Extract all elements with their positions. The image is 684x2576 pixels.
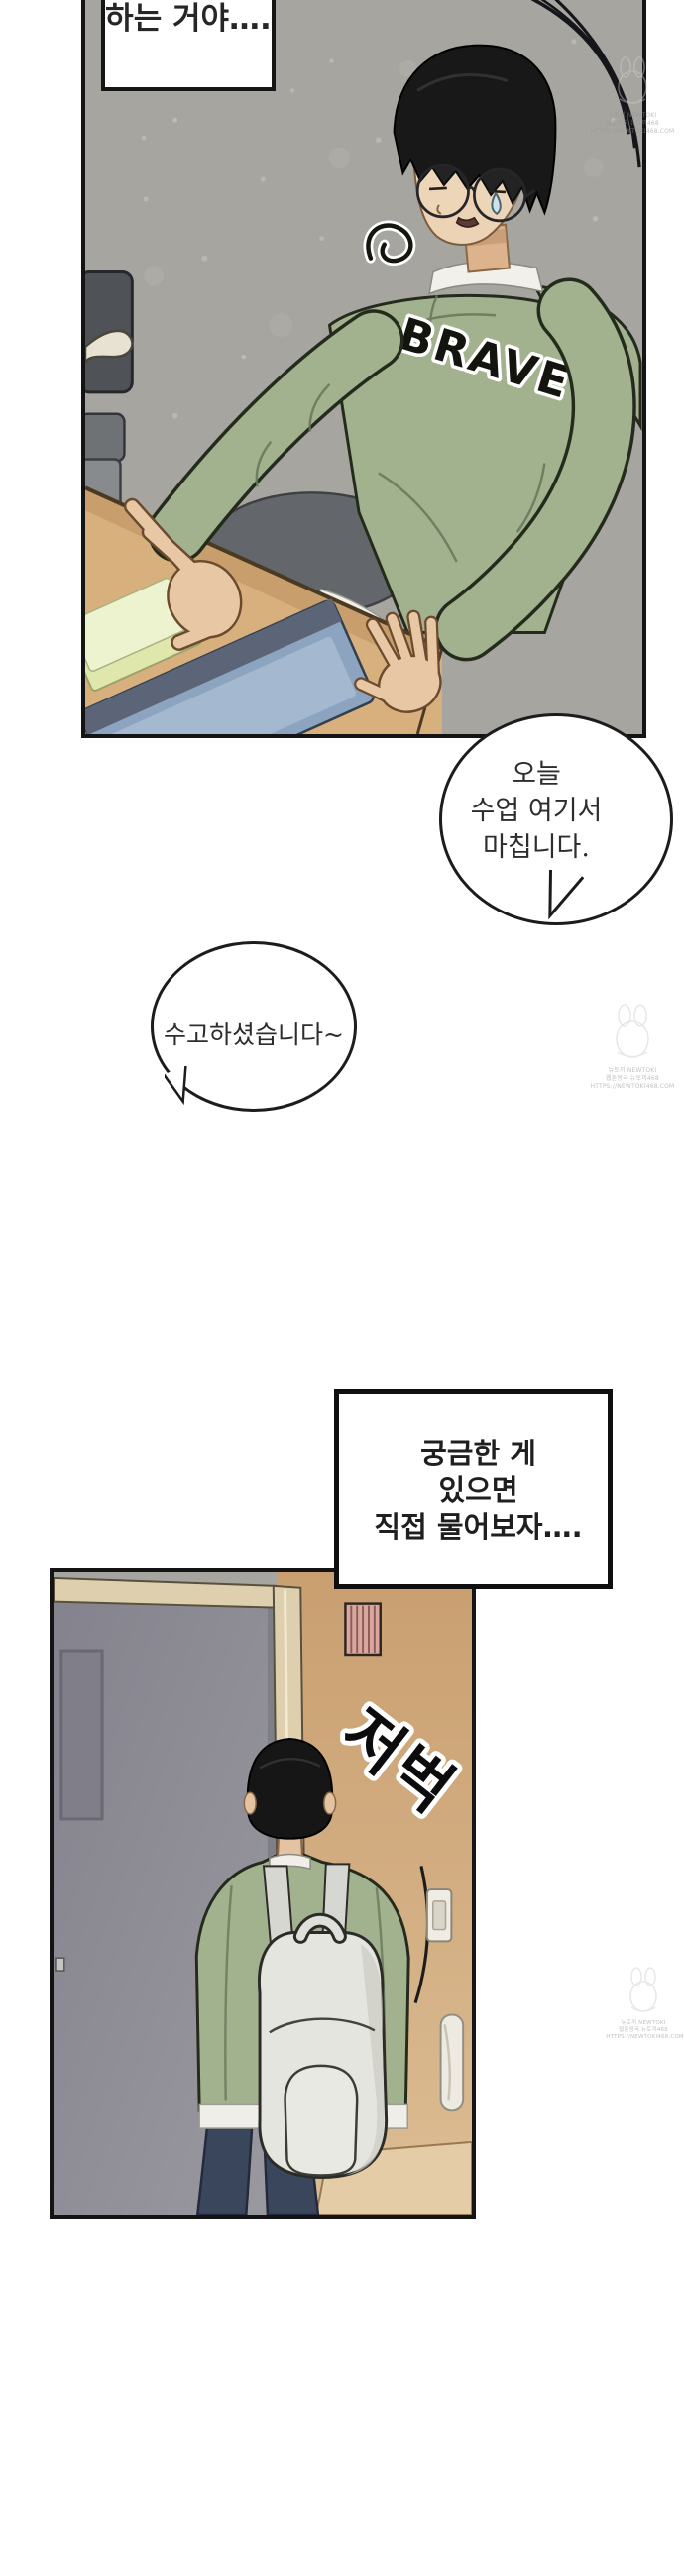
speech-bubble-class-end-tail [536, 870, 584, 921]
watermark-bottom: 뉴토끼 NEWTOKI 웹툰왕국 뉴토끼468 HTTPS://NEWTOKI4… [603, 1966, 684, 2040]
panel-doorway: 저벅 [50, 1568, 476, 2219]
panel-classroom: BRAVE [81, 0, 646, 738]
speech-box-cutoff-text: 하는 거야…. [105, 0, 272, 38]
vent-grille [345, 1604, 380, 1655]
watermark-logo-icon [602, 1003, 663, 1064]
panel-doorway-art: 저벅 [54, 1572, 472, 2215]
door-latch [56, 1958, 64, 1971]
panel-classroom-art: BRAVE [85, 0, 642, 734]
right-ear-back [324, 1792, 336, 1814]
monologue-box-text: 궁금한 게 있으면 직접 물어보자…. [344, 1394, 613, 1546]
left-leg [197, 2126, 252, 2215]
light-switch [427, 1889, 452, 1941]
speech-bubble-thanks-text: 수고하셨습니다~ [154, 944, 354, 1051]
watermark-logo-icon [618, 1966, 669, 2017]
speech-bubble-thanks-tail [165, 1066, 198, 1108]
hair-back [248, 1739, 333, 1839]
speech-bubble-class-end-text: 오늘 수업 여기서 마칩니다. [422, 716, 650, 866]
backpack-pocket [285, 2066, 358, 2176]
left-ear-back [244, 1792, 256, 1814]
monologue-box: 궁금한 게 있으면 직접 물어보자…. [334, 1389, 613, 1589]
speech-box-cutoff: 하는 거야…. [101, 0, 276, 91]
watermark-middle: 뉴토끼 NEWTOKI 웹툰왕국 뉴토끼468 HTTPS://NEWTOKI4… [581, 1003, 684, 1090]
door-handle [441, 2014, 464, 2110]
door-window [61, 1651, 102, 1819]
comic-page: BRAVE [0, 0, 684, 2576]
